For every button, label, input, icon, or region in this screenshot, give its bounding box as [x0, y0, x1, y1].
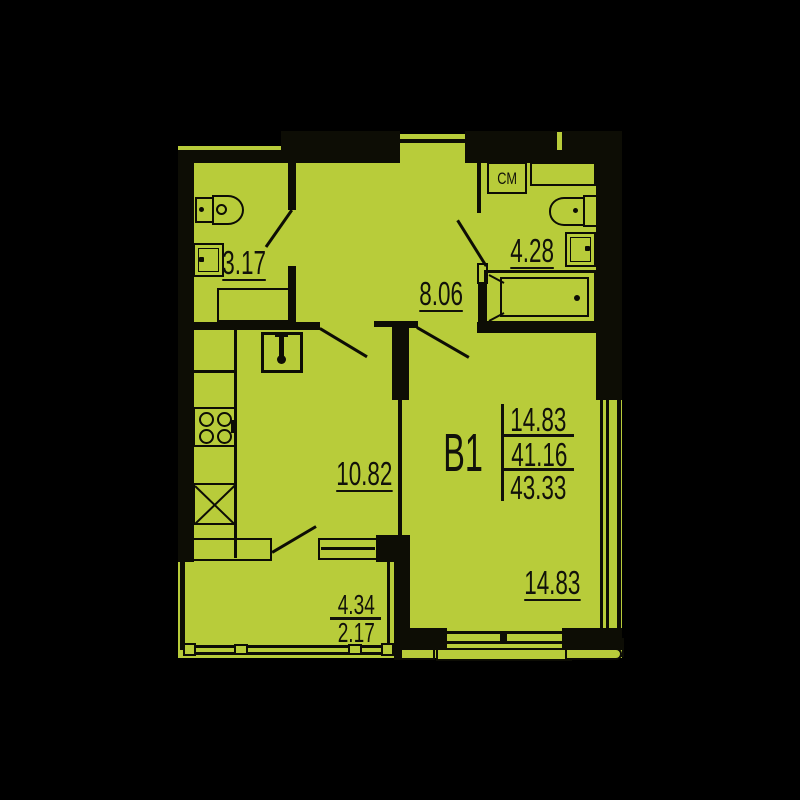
sink-icon — [199, 257, 204, 262]
faucet-icon — [277, 355, 286, 364]
stove-knob — [231, 420, 237, 433]
kitchen-area-label: 10.82 — [333, 460, 395, 489]
washing-machine-label: СМ — [487, 163, 527, 193]
entrance-threshold — [398, 139, 467, 143]
apartment-id-label: В1 — [435, 428, 491, 478]
toilet-icon — [549, 197, 585, 226]
window-mullion — [500, 633, 507, 642]
window — [617, 400, 621, 642]
wall — [288, 163, 296, 210]
balcony-door-sill — [192, 538, 272, 561]
balcony-area-label: 4.34 — [331, 592, 381, 617]
faucet-icon — [275, 334, 288, 337]
cabinet — [217, 288, 290, 322]
balcony-window — [321, 547, 375, 550]
hallway-area-label: 8.06 — [416, 280, 466, 309]
window — [606, 400, 609, 638]
sink-icon — [585, 246, 590, 251]
balcony-wall — [180, 562, 185, 650]
wall — [477, 163, 481, 213]
wall — [178, 150, 194, 562]
window-sill — [436, 648, 572, 661]
wall — [392, 321, 409, 400]
wall — [562, 628, 622, 650]
toilet-icon — [216, 204, 227, 215]
glazing-post — [234, 644, 248, 655]
total-area-value: 43.33 — [503, 474, 573, 500]
toilet-icon — [573, 208, 578, 213]
living-area-value: 14.83 — [505, 406, 571, 432]
living-room-area-label: 14.83 — [520, 569, 584, 598]
wall — [376, 535, 394, 562]
toilet-icon — [199, 207, 204, 212]
window-sill — [400, 648, 435, 660]
bathtub-drain — [574, 295, 580, 301]
area-value: 41.16 — [507, 441, 571, 467]
floor-plan: СМ 3.17 8.06 4.28 10.82 14.83 В1 14.83 4… — [0, 0, 800, 800]
bathroom-area-label: 4.28 — [507, 237, 557, 266]
toilet-icon — [583, 195, 600, 227]
balcony-reduced-area-label: 2.17 — [331, 620, 381, 645]
stove-burner — [199, 412, 214, 427]
stove-burner — [217, 429, 232, 444]
wc-area-label: 3.17 — [221, 249, 267, 277]
balcony-glazing — [387, 562, 390, 648]
wall — [281, 131, 400, 163]
wall — [596, 131, 622, 400]
wall — [178, 322, 320, 330]
window — [600, 400, 603, 638]
wall-joint — [557, 132, 562, 150]
glazing-post — [381, 643, 394, 656]
window-sill — [565, 648, 622, 660]
glazing-post — [183, 643, 196, 656]
shelf — [530, 162, 596, 186]
stove-burner — [199, 429, 214, 444]
counter-divider — [194, 370, 234, 373]
partition — [398, 400, 402, 538]
balcony-glazing — [183, 652, 394, 655]
wall — [396, 628, 447, 650]
stove-burner — [217, 412, 232, 427]
wall — [178, 150, 290, 163]
